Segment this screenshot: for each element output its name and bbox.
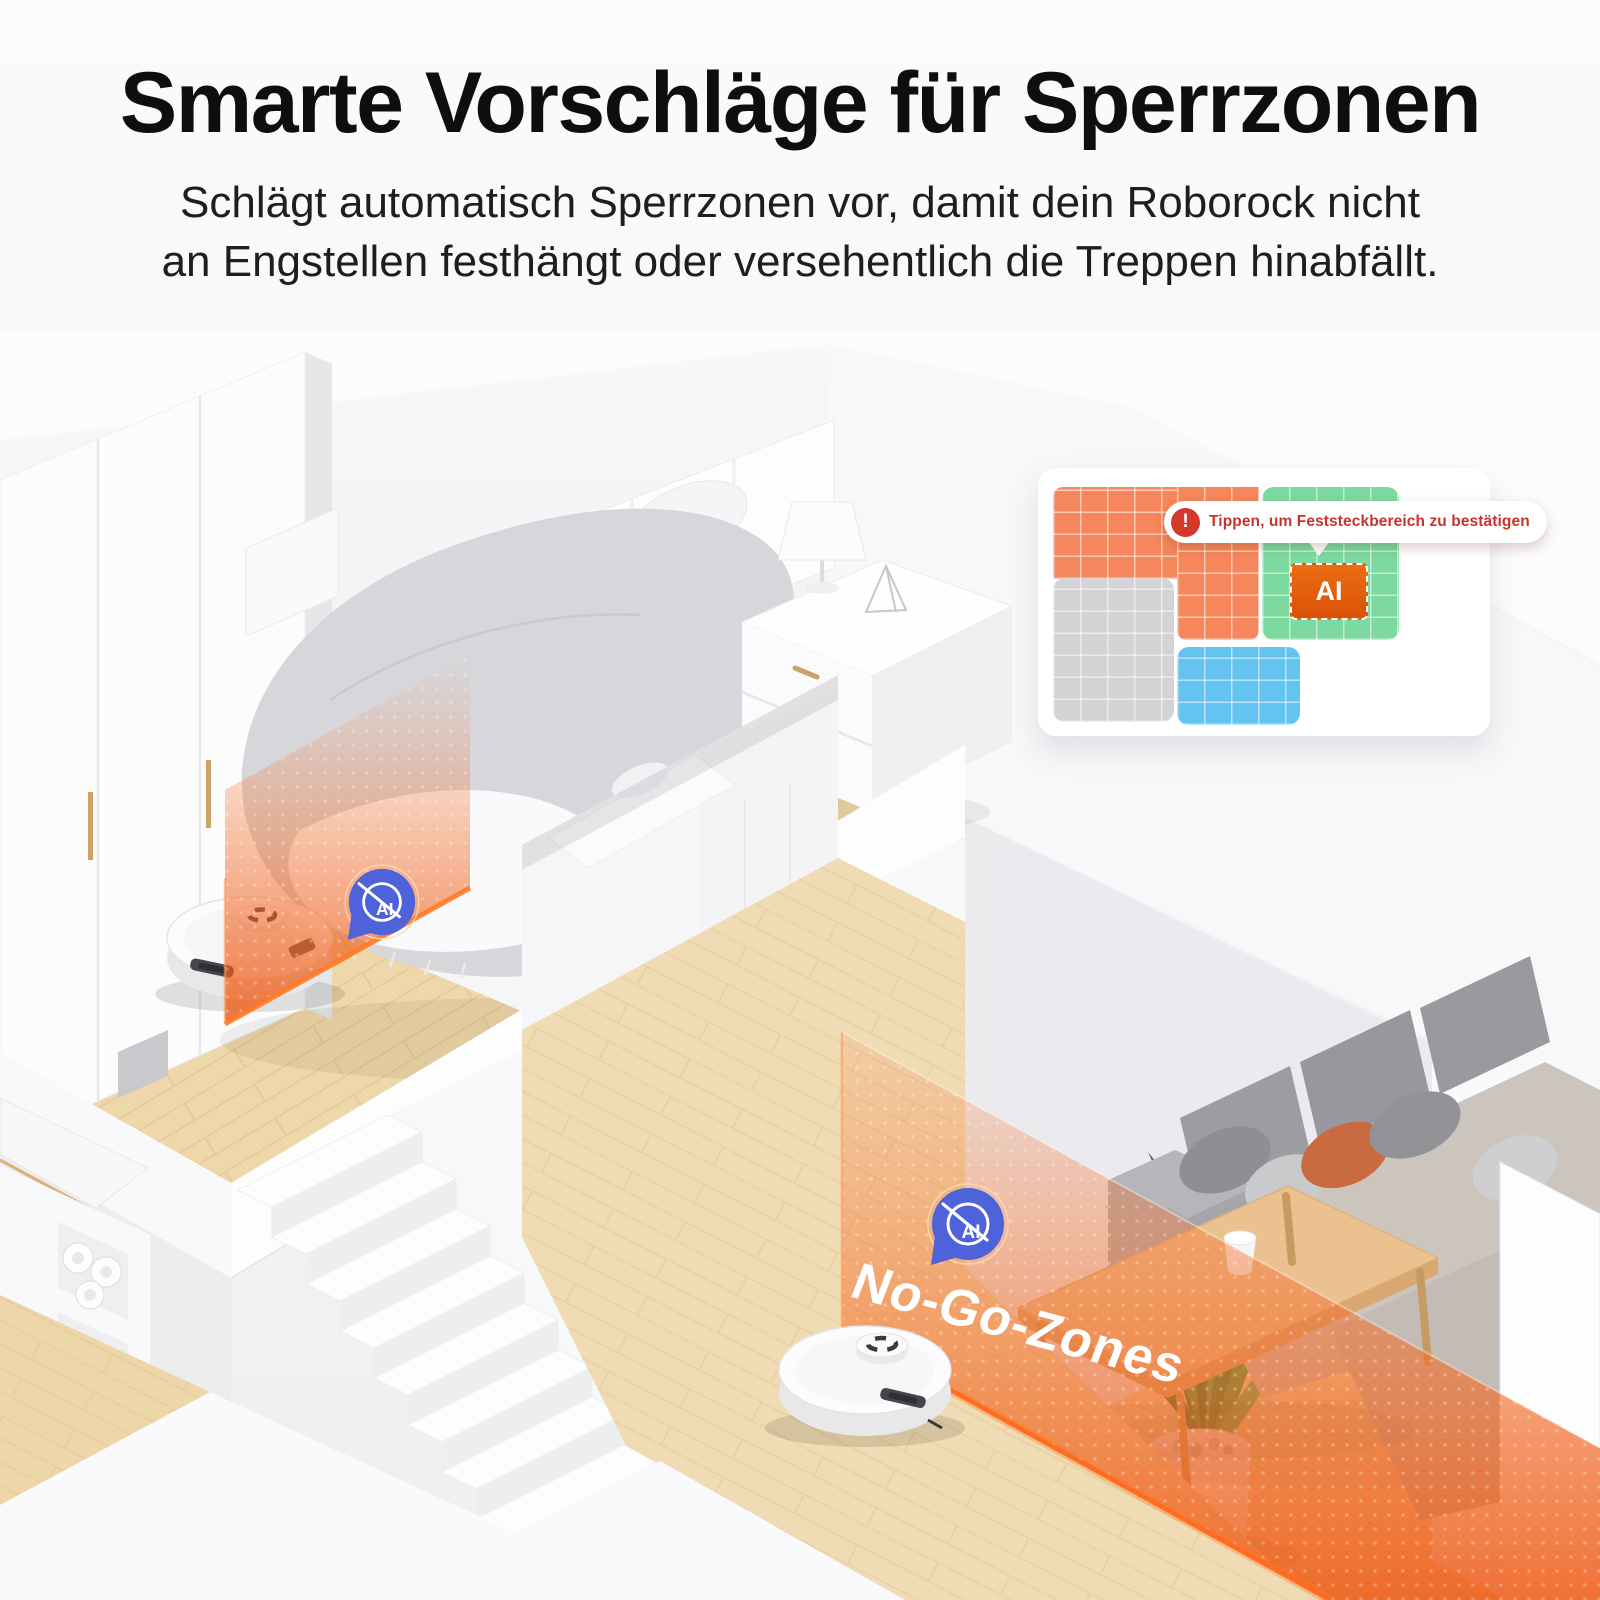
map-zone-mapped-room <box>1053 578 1174 722</box>
wardrobe-handle <box>88 792 93 860</box>
tooltip-text: Tippen, um Feststeckbereich zu bestätige… <box>1209 513 1530 531</box>
map-zone-water-area <box>1177 647 1300 725</box>
header: Smarte Vorschläge für Sperrzonen Schlägt… <box>0 58 1600 292</box>
subtitle-line-1: Schlägt automatisch Sperrzonen vor, dami… <box>0 174 1600 233</box>
ai-suggested-zone-box[interactable]: AI <box>1290 563 1368 620</box>
wardrobe-handle <box>206 760 211 828</box>
marketing-banner: AI <box>0 0 1600 1600</box>
map-preview-card: AI ! Tippen, um Feststeckbereich zu best… <box>1038 468 1490 736</box>
robot-vacuum-downstairs <box>765 1326 965 1447</box>
tooltip-tail-icon <box>1308 541 1330 556</box>
subtitle-line-2: an Engstellen festhängt oder versehentli… <box>0 233 1600 292</box>
alert-icon: ! <box>1171 508 1200 537</box>
page-title: Smarte Vorschläge für Sperrzonen <box>0 58 1600 148</box>
ai-pin-badge-upstairs <box>345 865 419 940</box>
ai-pin-badge-downstairs <box>928 1184 1008 1265</box>
stuck-area-tooltip[interactable]: ! Tippen, um Feststeckbereich zu bestäti… <box>1164 501 1547 543</box>
page-subtitle: Schlägt automatisch Sperrzonen vor, dami… <box>0 174 1600 292</box>
